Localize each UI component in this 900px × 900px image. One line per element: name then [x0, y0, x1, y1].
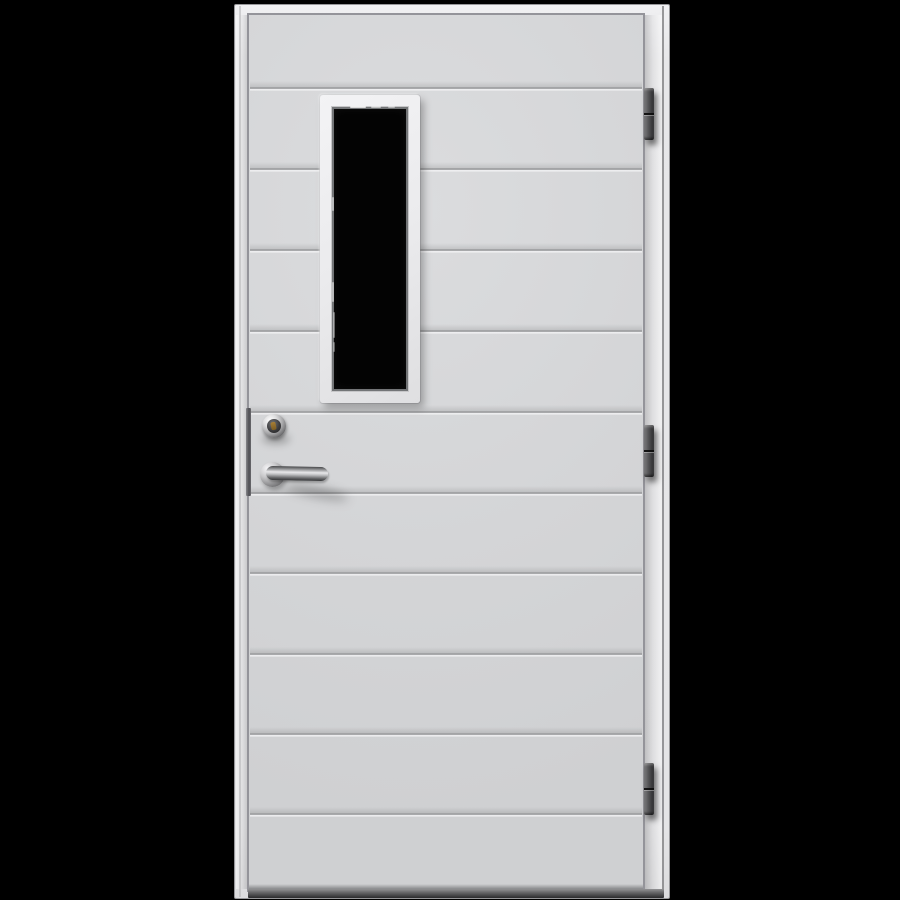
door-threshold	[248, 889, 664, 898]
door-handle-lever	[266, 466, 328, 481]
window-glass	[332, 107, 408, 391]
frame-reveal-line-left	[239, 6, 241, 897]
door-leaf	[249, 15, 643, 890]
door-product-photo	[0, 0, 900, 900]
frame-shade-right	[645, 15, 662, 889]
frame-reveal-line-right	[662, 6, 664, 897]
lock-edge-plate	[246, 408, 251, 496]
